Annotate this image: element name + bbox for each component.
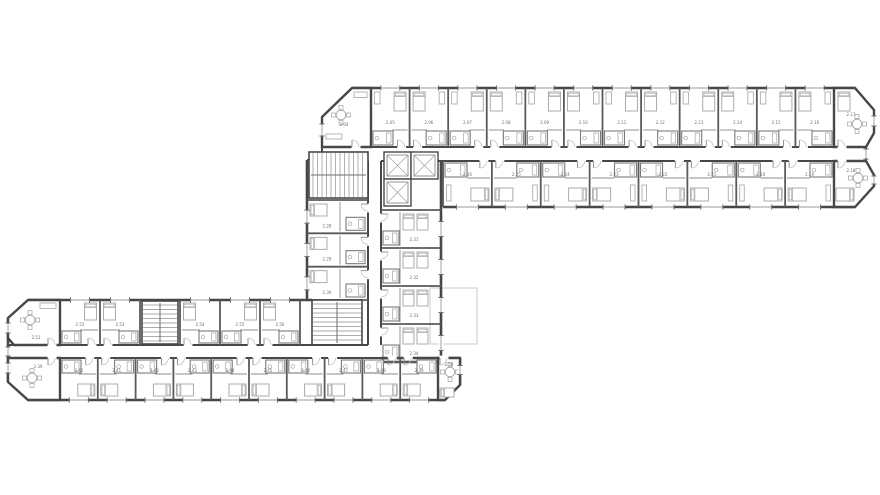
- room-module: 2.23: [592, 159, 637, 210]
- room-number-label: 2.06: [424, 120, 433, 125]
- room-module: 2.41: [100, 356, 134, 403]
- room-number-label: 2.21: [707, 172, 716, 177]
- room-number-label: 2.11: [617, 120, 626, 125]
- room-number-label: 2.26: [463, 172, 472, 177]
- room-module: 2.06: [412, 85, 447, 149]
- room-module: 2.28: [304, 202, 370, 231]
- room-corner-suite: 2.39: [5, 356, 60, 400]
- room-number-label: 2.33: [410, 313, 419, 318]
- room-number-label: 2.05: [386, 120, 395, 125]
- room-module: 2.20: [738, 159, 783, 210]
- room-number-label: 2.19: [805, 172, 814, 177]
- room-number-label: 2.09: [540, 120, 549, 125]
- room-module: 2.30: [304, 269, 370, 298]
- room-module: 2.46: [289, 356, 323, 403]
- room-module: 2.22: [641, 159, 686, 210]
- room-number-label: 2.04: [340, 122, 349, 127]
- terrace-outline: [430, 288, 477, 344]
- room-module: 2.21: [689, 159, 734, 210]
- room-number-label: 2.31: [410, 237, 419, 242]
- room-module: 2.43: [175, 356, 209, 403]
- room-number-label: 2.23: [610, 172, 619, 177]
- room-corner-suite: 2.51: [5, 300, 60, 347]
- room-module: 2.10: [566, 85, 601, 149]
- room-number-label: 2.48: [377, 368, 386, 373]
- room-number-label: 2.44: [226, 368, 235, 373]
- room-corner-lounge: 2.04: [319, 88, 371, 149]
- room-number-label: 2.30: [323, 290, 332, 295]
- room-module: 2.16: [797, 85, 832, 149]
- room-module: 2.08: [489, 85, 524, 149]
- room-number-label: 2.17: [847, 112, 856, 117]
- room-number-label: 2.20: [756, 172, 765, 177]
- room-number-label: 2.56: [276, 322, 285, 327]
- room-number-label: 2.18: [847, 168, 856, 173]
- room-module: 2.40: [62, 356, 96, 403]
- room-module: 2.55: [222, 297, 258, 347]
- room-module: 2.11: [605, 85, 640, 149]
- room-number-label: 2.34: [410, 351, 419, 356]
- room-module: 2.32: [379, 250, 444, 284]
- room-module: 2.47: [327, 356, 361, 403]
- room-number-label: 2.12: [656, 120, 665, 125]
- room-module: 2.19: [787, 159, 832, 210]
- room-module: 2.31: [379, 212, 444, 246]
- room-number-label: 2.53: [116, 322, 125, 327]
- room-number-label: 2.50: [445, 362, 454, 367]
- room-module: 2.42: [138, 356, 172, 403]
- room-number-label: 2.08: [502, 120, 511, 125]
- room-number-label: 2.42: [150, 368, 159, 373]
- room-number-label: 2.52: [76, 322, 85, 327]
- room-number-label: 2.51: [32, 335, 41, 340]
- room-corner-suite: 2.50: [438, 356, 463, 400]
- room-module: 2.25: [494, 159, 539, 210]
- room-number-label: 2.28: [323, 223, 332, 228]
- room-module: 2.15: [759, 85, 794, 149]
- room-module: 2.33: [379, 288, 444, 322]
- room-number-label: 2.16: [810, 120, 819, 125]
- room-module: 2.07: [450, 85, 485, 149]
- room-number-label: 2.41: [112, 368, 121, 373]
- room-number-label: 2.29: [323, 257, 332, 262]
- room-number-label: 2.45: [263, 368, 272, 373]
- room-number-label: 2.24: [561, 172, 570, 177]
- room-corner-suite: 2.17: [834, 88, 877, 149]
- room-module: 2.26: [445, 159, 490, 210]
- room-number-label: 2.07: [463, 120, 472, 125]
- room-module: 2.12: [643, 85, 678, 149]
- room-module: 2.09: [527, 85, 562, 149]
- room-number-label: 2.43: [188, 368, 197, 373]
- room-number-label: 2.14: [733, 120, 742, 125]
- room-module: 2.52: [62, 297, 98, 347]
- room-number-label: 2.47: [339, 368, 348, 373]
- room-number-label: 2.55: [236, 322, 245, 327]
- room-module: 2.56: [262, 297, 298, 347]
- room-number-label: 2.40: [74, 368, 83, 373]
- room-number-label: 2.25: [512, 172, 521, 177]
- room-number-label: 2.22: [658, 172, 667, 177]
- room-module: 2.14: [720, 85, 755, 149]
- room-module: 2.54: [182, 297, 218, 347]
- room-module: 2.34: [379, 326, 444, 360]
- room-module: 2.53: [102, 297, 138, 347]
- room-module: 2.29: [304, 235, 370, 264]
- room-module: 2.48: [364, 356, 398, 403]
- room-number-label: 2.10: [579, 120, 588, 125]
- room-corner-suite: 2.18: [834, 159, 877, 207]
- room-module: 2.05: [373, 85, 408, 149]
- room-module: 2.45: [251, 356, 285, 403]
- room-module: 2.24: [543, 159, 588, 210]
- room-number-label: 2.39: [34, 364, 43, 369]
- floor-plan-canvas: 2.042.052.062.072.082.092.102.112.122.13…: [0, 0, 880, 495]
- room-number-label: 2.32: [410, 275, 419, 280]
- room-number-label: 2.54: [196, 322, 205, 327]
- room-number-label: 2.15: [772, 120, 781, 125]
- room-module: 2.44: [213, 356, 247, 403]
- room-module: 2.13: [682, 85, 717, 149]
- room-number-label: 2.49: [415, 368, 424, 373]
- room-number-label: 2.13: [695, 120, 704, 125]
- floor-plan-svg: 2.042.052.062.072.082.092.102.112.122.13…: [0, 0, 880, 495]
- room-number-label: 2.46: [301, 368, 310, 373]
